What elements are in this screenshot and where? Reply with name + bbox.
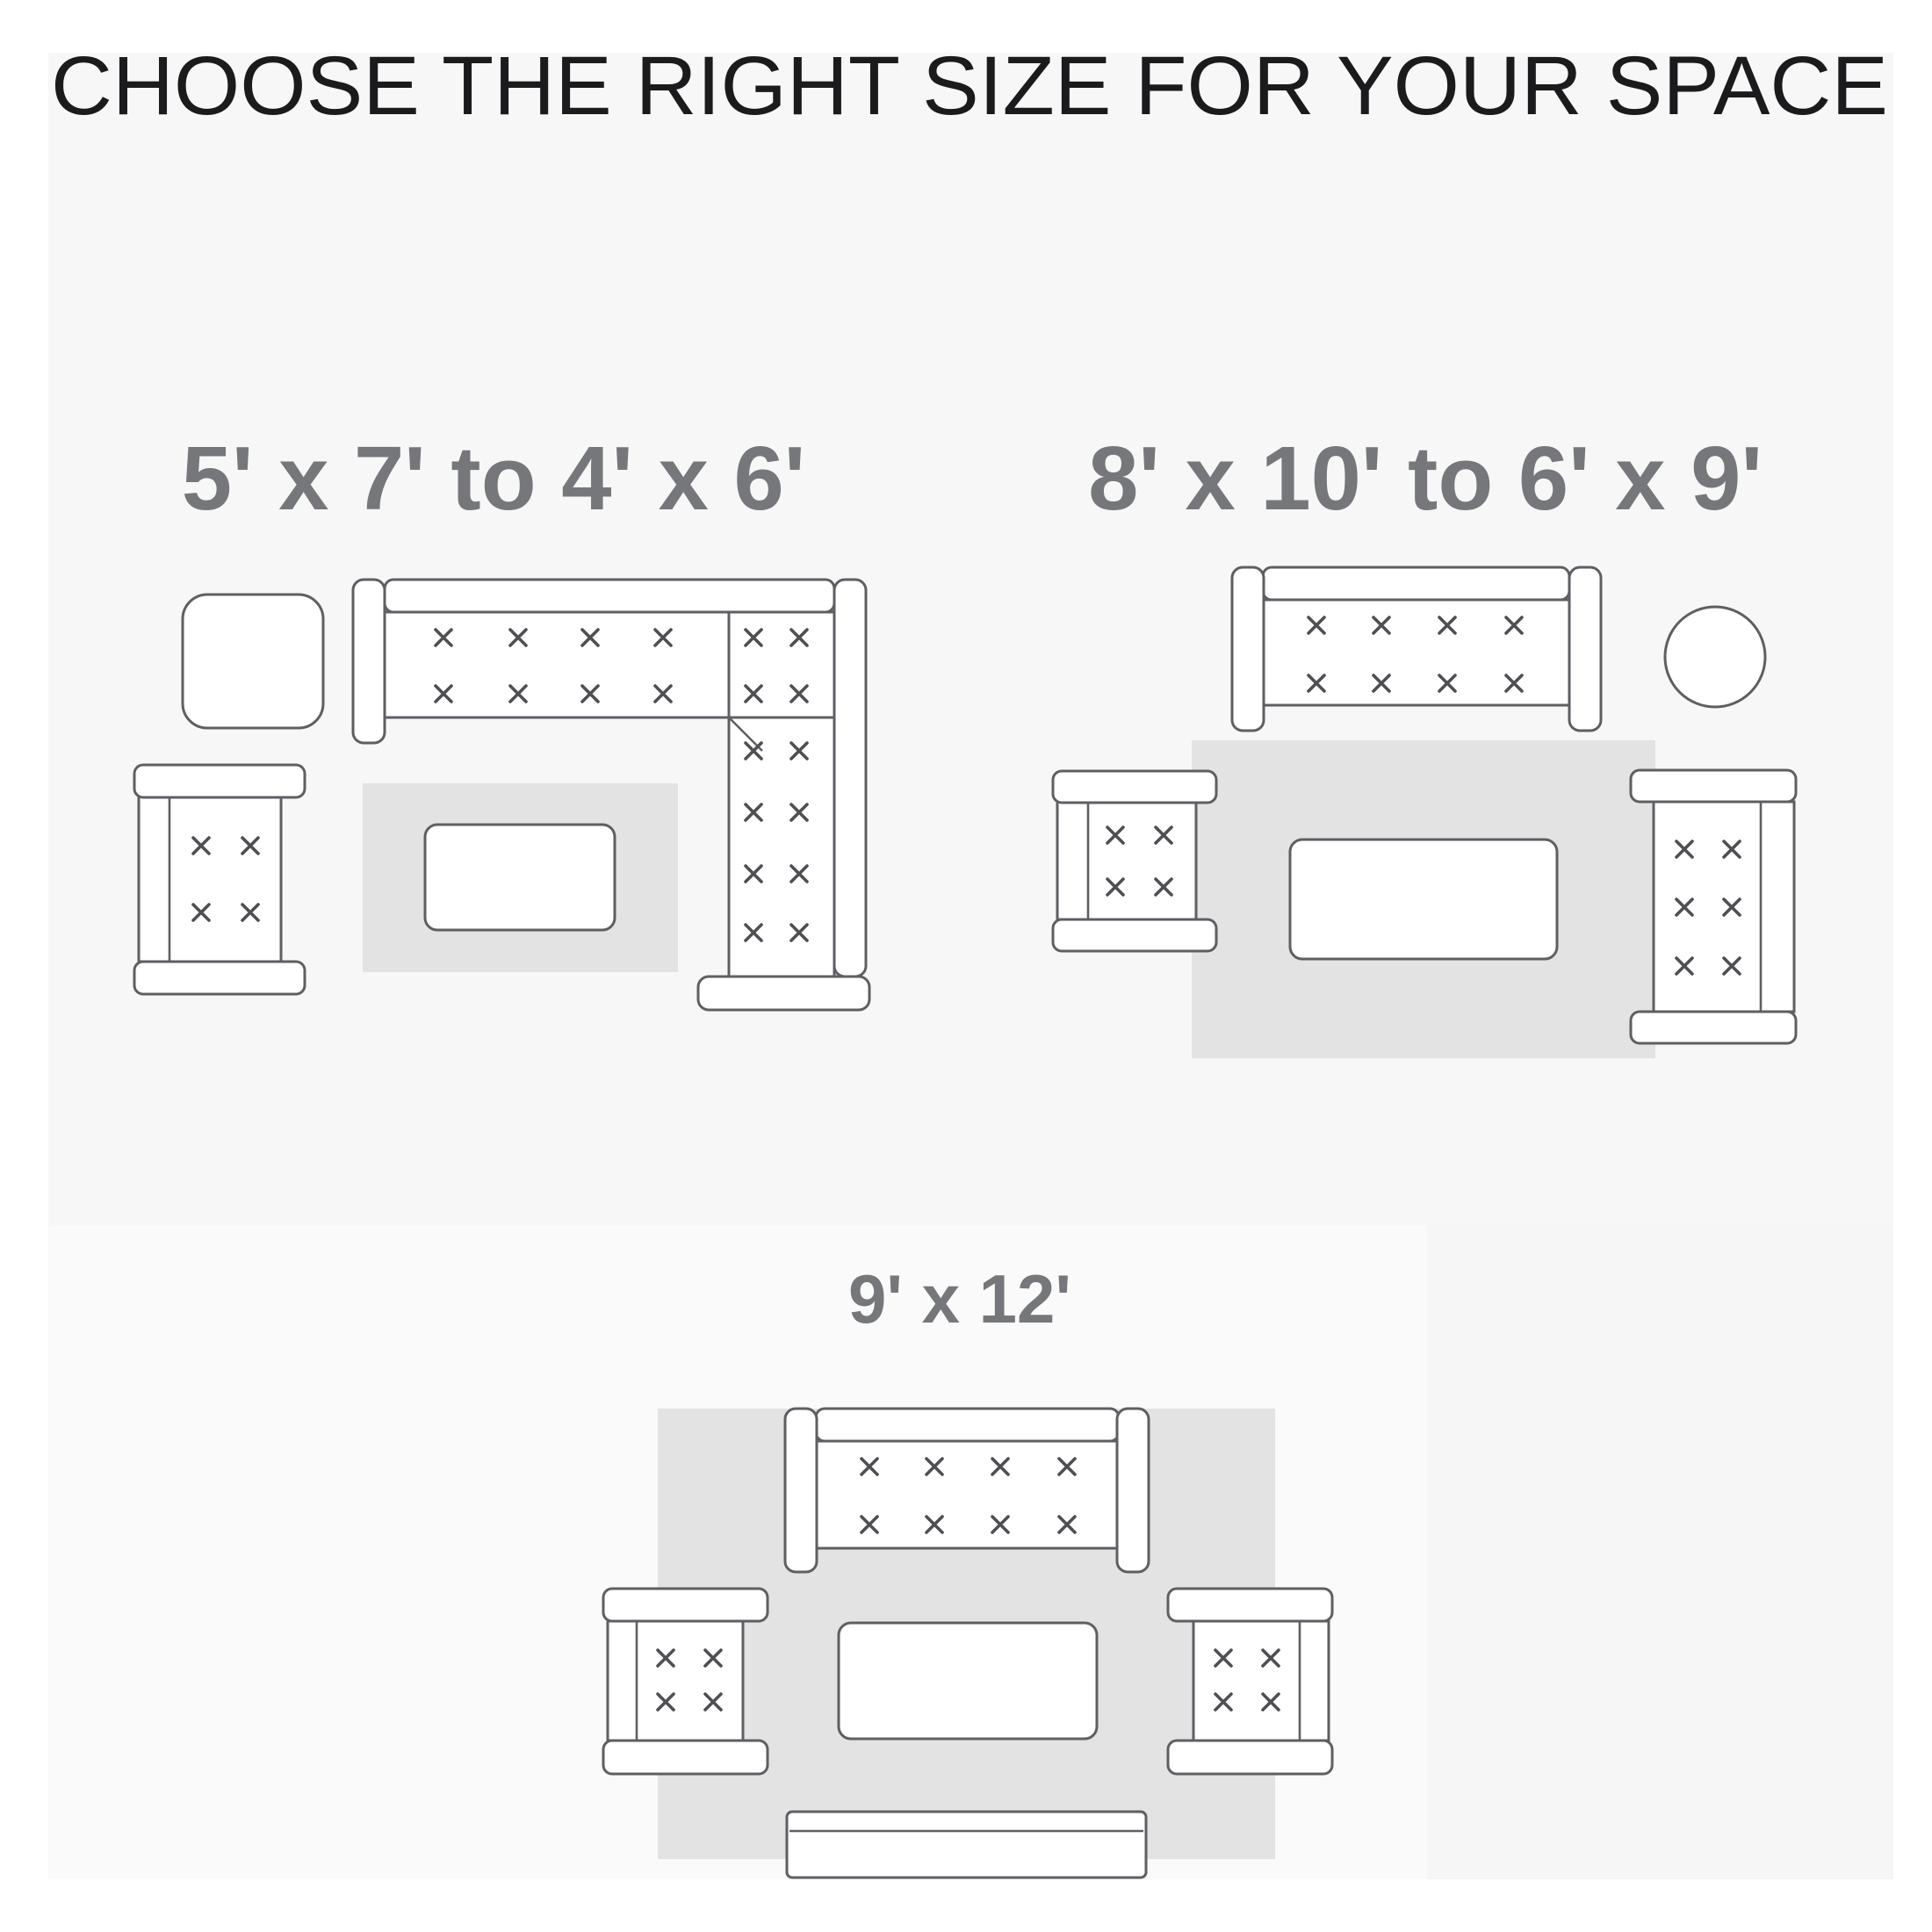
guide-graphic: CHOOSE THE RIGHT SIZE FOR YOUR SPACE 5' … [0, 0, 1932, 1932]
armchair-body [1057, 802, 1196, 919]
armchair-body [608, 1621, 743, 1741]
sofa-back-cushion [816, 1409, 1119, 1441]
armchair-armrest-top [603, 1589, 768, 1621]
armchair-armrest-bottom [1053, 919, 1216, 951]
background-panel-bottom-right [1427, 1225, 1893, 1879]
sofa-armrest-left [353, 580, 385, 743]
sofa-armrest-right [1117, 1409, 1149, 1572]
sofa [785, 1409, 1149, 1572]
bench-body [787, 1812, 1146, 1878]
armchair-armrest-bottom [1631, 1012, 1796, 1043]
armchair-armrest-top [1631, 770, 1796, 802]
armchair-right [1168, 1589, 1332, 1774]
armchair-left [1053, 771, 1216, 951]
armchair [134, 765, 305, 994]
sofa-back-cushion [385, 580, 834, 612]
coffee-table [425, 825, 615, 930]
side-table [183, 595, 323, 728]
armchair-armrest-top [1168, 1589, 1332, 1621]
coffee-table [839, 1623, 1097, 1739]
armchair-body [139, 797, 281, 962]
sofa-back-cushion [1263, 567, 1569, 600]
sofa-armrest-left [1232, 567, 1264, 731]
armchair-left [603, 1589, 768, 1774]
armchair-armrest-top [1053, 771, 1216, 803]
rug-size-guide-infographic: CHOOSE THE RIGHT SIZE FOR YOUR SPACE 5' … [0, 0, 1932, 1932]
sofa [1232, 567, 1601, 731]
size-label-large: 9' x 12' [848, 1260, 1071, 1337]
armchair-armrest-bottom [134, 962, 305, 994]
diagram-small-rug: 5' x 7' to 4' x 6' [134, 428, 869, 1010]
armchair-right [1631, 770, 1796, 1043]
sofa-armrest-bottom [698, 977, 869, 1010]
armchair-armrest-bottom [1168, 1741, 1332, 1774]
sofa-armrest-left [785, 1409, 817, 1572]
page-title: CHOOSE THE RIGHT SIZE FOR YOUR SPACE [51, 40, 1888, 133]
armchair-body [1193, 1621, 1329, 1741]
size-label-medium: 8' x 10' to 6' x 9' [1088, 428, 1763, 529]
round-side-table [1665, 607, 1765, 707]
sofa-armrest-right [1569, 567, 1601, 731]
coffee-table [1290, 840, 1557, 959]
armchair-armrest-top [134, 765, 305, 797]
armchair-body [1654, 802, 1794, 1012]
armchair-armrest-bottom [603, 1741, 768, 1774]
sofa-chaise-seat [729, 717, 834, 977]
size-label-small: 5' x 7' to 4' x 6' [182, 428, 806, 529]
sofa-armrest-right [834, 580, 866, 977]
media-bench [787, 1812, 1146, 1878]
